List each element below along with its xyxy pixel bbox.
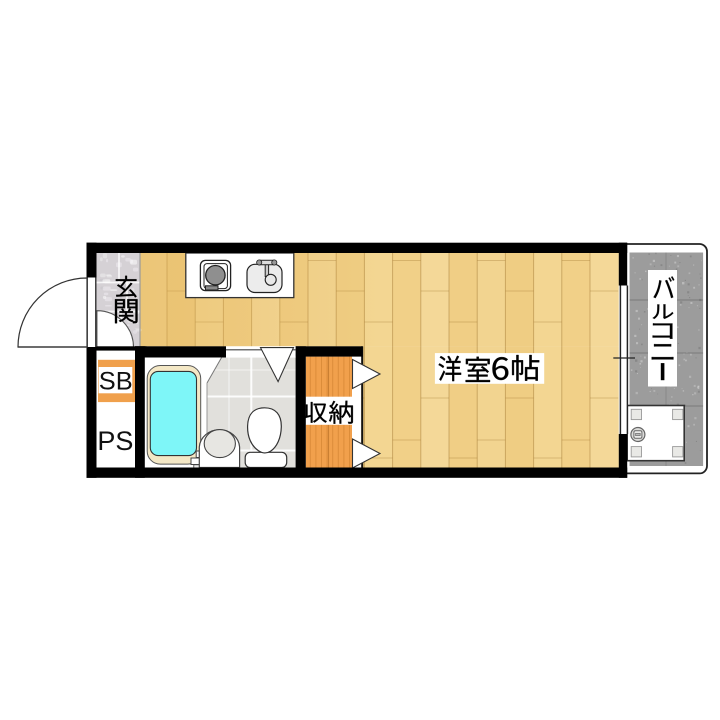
svg-text:SB: SB [99, 368, 133, 396]
svg-text:PS: PS [97, 426, 133, 456]
